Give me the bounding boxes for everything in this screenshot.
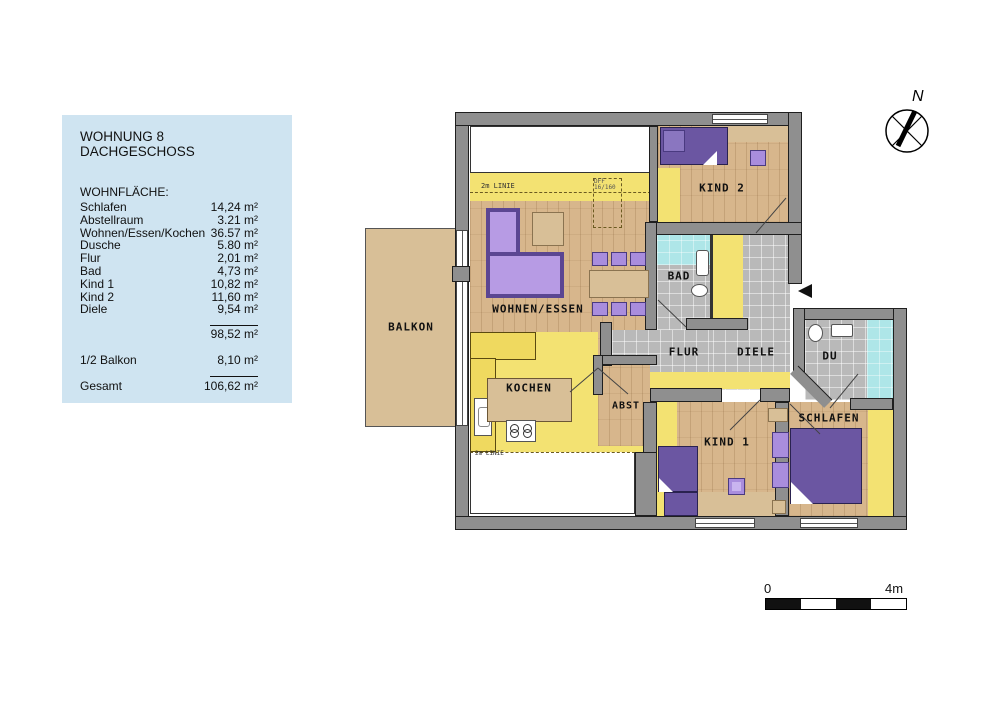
compass-icon (886, 110, 928, 152)
label-abst: ABST (612, 401, 640, 412)
label-flur: FLUR (669, 346, 700, 359)
label-schlafen: SCHLAFEN (799, 412, 860, 425)
label-kochen: KOCHEN (506, 382, 552, 395)
label-bad: BAD (668, 270, 691, 283)
label-kind2: KIND 2 (699, 182, 745, 195)
floorplan-page: WOHNUNG 8 DACHGESCHOSS WOHNFLÄCHE: Schla… (0, 0, 1000, 706)
label-2m-linie-top: 2m LINIE (481, 182, 515, 190)
scalebar-end-label: 4m (885, 581, 903, 596)
label-balkon: BALKON (388, 321, 434, 334)
label-wohnen-essen: WOHNEN/ESSEN (492, 303, 583, 316)
label-diele: DIELE (737, 346, 775, 359)
label-2m-linie-bottom: 2m LINIE (475, 450, 504, 457)
entrance-arrow-icon (798, 284, 812, 298)
label-kind1: KIND 1 (704, 436, 750, 449)
label-du: DU (822, 350, 837, 363)
north-label: N (912, 88, 924, 106)
scalebar (765, 598, 907, 610)
scalebar-start-label: 0 (764, 581, 771, 596)
